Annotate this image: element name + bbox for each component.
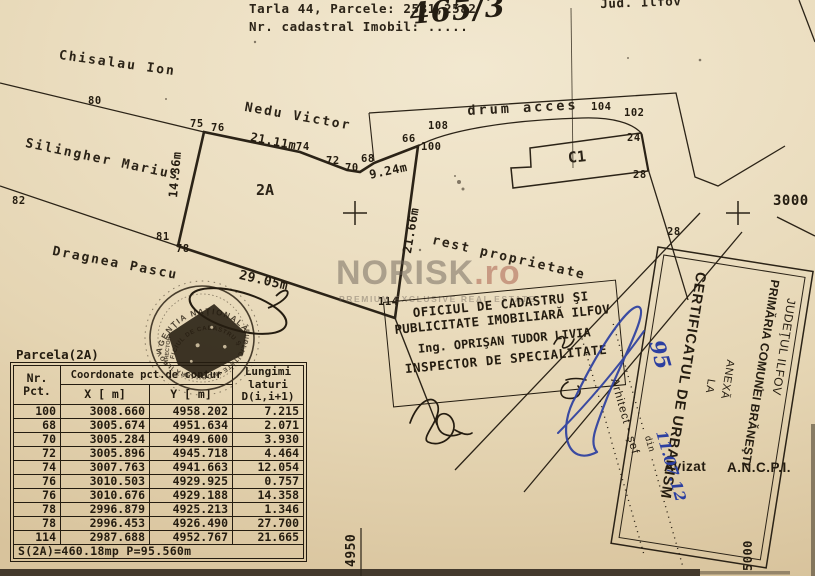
grid-cross-west	[343, 201, 367, 225]
building-label: C1	[567, 147, 587, 167]
point-label-24: 24	[627, 132, 641, 144]
point-label-80: 80	[88, 95, 102, 107]
col-header-coord: Coordonate pct.de contur	[61, 366, 233, 385]
watermark-name: NORISK	[336, 254, 474, 292]
table-row: 1003008.6604958.2027.215	[14, 404, 304, 418]
col-header-nr: Nr. Pct.	[14, 366, 61, 405]
coord-table-body: 1003008.6604958.2027.215683005.6744951.6…	[14, 404, 304, 544]
cert-la: LA	[703, 378, 717, 394]
point-label-72: 72	[326, 155, 340, 167]
col-header-d: Lungimi laturi D(i,i+1)	[233, 366, 304, 405]
point-label-5000: 5000	[741, 540, 755, 571]
point-label-70: 70	[345, 162, 359, 174]
table-row: 703005.2844949.6003.930	[14, 432, 304, 446]
table-row: 683005.6744951.6342.071	[14, 418, 304, 432]
point-label-75: 75	[190, 118, 204, 130]
point-label-3000: 3000	[773, 193, 809, 209]
boundary-dragnea	[0, 186, 178, 246]
cert-anexa: ANEXĂ	[718, 359, 737, 400]
point-label-4950: 4950	[344, 534, 359, 567]
watermark-tld: .ro	[474, 254, 520, 292]
table-footer: S(2A)=460.18mp P=95.560m	[14, 544, 304, 558]
table-row: 1142987.6884952.76721.665	[14, 530, 304, 544]
point-label-28: 28	[667, 226, 681, 238]
table-row: 723005.8964945.7184.464	[14, 446, 304, 460]
grid-line-vertical	[571, 8, 573, 168]
ancpi-label: A.N.C.P.I.	[727, 460, 791, 475]
grid-tick-3000	[777, 217, 815, 236]
avizat-label: Avizat	[664, 459, 706, 474]
road-edge-south	[418, 118, 642, 146]
point-label-68: 68	[361, 153, 375, 165]
cadastre-office-stamp: OFICIUL DE CADASTRU ŞI PUBLICITATE IMOBI…	[383, 280, 626, 408]
table-row: 782996.8794925.2131.346	[14, 502, 304, 516]
col-header-y: Y [ m]	[150, 385, 233, 404]
point-label-102: 102	[624, 107, 644, 119]
table-row: 743007.7634941.66312.054	[14, 460, 304, 474]
coordinate-table: Nr. Pct. Coordonate pct.de contur Lungim…	[10, 362, 307, 562]
table-row: 763010.5034929.9250.757	[14, 474, 304, 488]
table-title: Parcela(2A)	[16, 347, 99, 362]
point-label-104: 104	[591, 101, 611, 113]
table-row: 763010.6764929.18814.358	[14, 488, 304, 502]
corner-line	[799, 0, 815, 42]
point-label-81: 81	[156, 231, 170, 243]
table-row: 782996.4534926.49027.700	[14, 516, 304, 530]
point-label-78: 78	[176, 243, 190, 255]
col-header-x: X [ m]	[61, 385, 150, 404]
point-label-100: 100	[421, 141, 441, 153]
watermark: NORISK.ro	[336, 254, 521, 293]
grid-cross-east	[726, 201, 750, 225]
point-label-76: 76	[211, 122, 225, 134]
point-label-66: 66	[402, 133, 416, 145]
point-label-28: 28	[633, 169, 647, 181]
boundary-east	[642, 134, 688, 300]
parcel-label: 2A	[256, 181, 274, 199]
point-label-108: 108	[428, 120, 448, 132]
point-label-74: 74	[296, 141, 310, 153]
point-label-82: 82	[12, 195, 26, 207]
cadastral-plan-scan: JUDEŢUL ILFOV PRIMĂRIA COMUNEI BRĂNEŞTI …	[0, 0, 815, 576]
boundary-chisalau	[0, 83, 204, 132]
